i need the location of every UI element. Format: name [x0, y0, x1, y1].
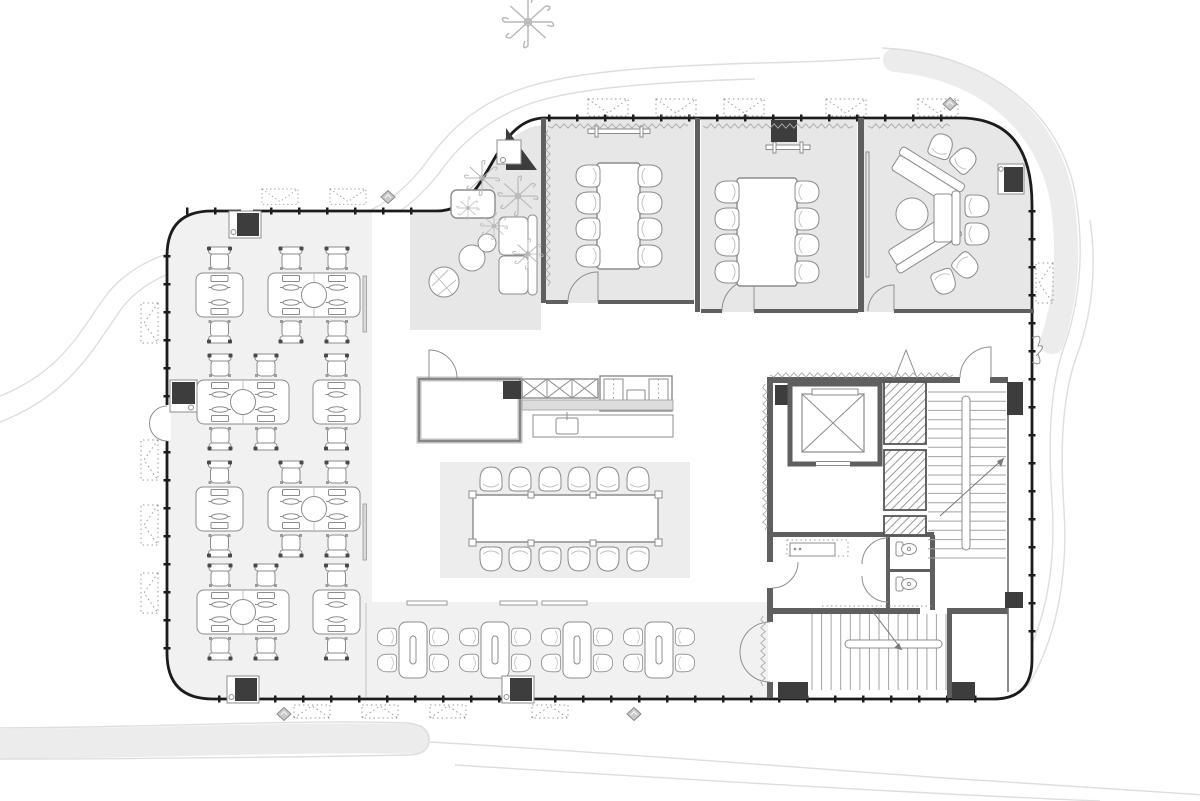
media-cabinet: [998, 164, 1024, 194]
tchair: [795, 234, 819, 256]
rattan-chair: [429, 267, 459, 297]
pouf-small: [478, 234, 496, 252]
center-console: [934, 191, 960, 245]
pantry-appliance: [503, 381, 521, 399]
hatched-counter: [522, 379, 598, 398]
shelf-bracket: [800, 142, 803, 153]
island-counter: [533, 415, 673, 437]
tchair: [795, 208, 819, 230]
tchair: [627, 467, 649, 491]
toilet: [896, 542, 917, 556]
shelf-bracket: [595, 126, 598, 137]
tchair: [638, 245, 662, 267]
tchair: [638, 165, 662, 187]
tchair: [576, 245, 600, 267]
floor-plan-canvas: [0, 0, 1200, 801]
tchair: [480, 467, 502, 491]
tchair: [576, 192, 600, 214]
tchair: [715, 181, 739, 203]
tchair: [576, 165, 600, 187]
conference-table-1: [597, 163, 640, 269]
tv-display: [771, 120, 797, 142]
long-table-area: [469, 491, 662, 546]
tchair: [568, 547, 590, 571]
counter-back: [522, 400, 673, 410]
tchair: [597, 547, 619, 571]
tchair: [597, 467, 619, 491]
tchair: [965, 195, 989, 217]
floor-plan-drawing: [0, 0, 1200, 801]
stair-handrail: [845, 640, 942, 648]
toilet: [896, 577, 917, 591]
tchair: [965, 223, 989, 245]
tchair: [638, 218, 662, 240]
shelf-bracket: [773, 142, 776, 153]
ac: [502, 676, 534, 703]
tchair: [638, 192, 662, 214]
ac: [170, 380, 197, 412]
elevator-counterweight: [812, 389, 858, 395]
tchair: [509, 547, 531, 571]
tchair: [627, 547, 649, 571]
ac: [229, 211, 261, 238]
tchair: [715, 261, 739, 283]
tchair: [568, 467, 590, 491]
tchair: [480, 547, 502, 571]
tchair: [715, 234, 739, 256]
lounge-sofa: [499, 215, 537, 295]
tchair: [715, 208, 739, 230]
long-table: [473, 495, 658, 542]
conference-table-2: [737, 178, 797, 286]
coffee-table: [451, 190, 495, 218]
tchair: [509, 467, 531, 491]
tchair: [795, 261, 819, 283]
tchair: [539, 467, 561, 491]
tchair: [795, 181, 819, 203]
stair-handrail: [962, 396, 970, 550]
tchair: [576, 218, 600, 240]
elevator-door-gap: [816, 459, 850, 468]
round-coffee-table: [896, 198, 928, 230]
ac: [227, 676, 259, 703]
tchair: [539, 547, 561, 571]
